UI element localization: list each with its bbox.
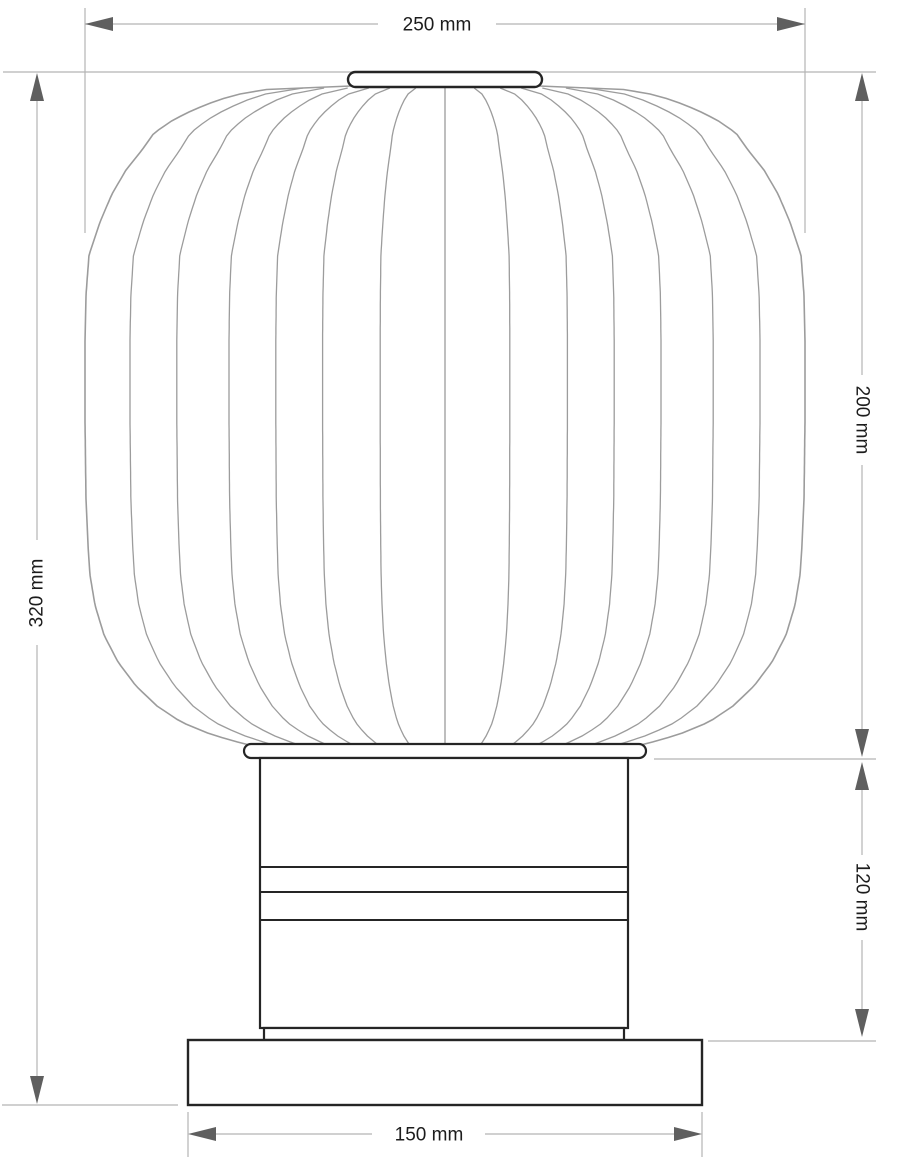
dimension-arrowhead: [777, 17, 805, 31]
dimension-arrowhead: [30, 73, 44, 101]
dimension-arrowhead: [855, 1009, 869, 1037]
dimension-arrowhead: [855, 729, 869, 757]
dimension-arrowhead: [188, 1127, 216, 1141]
dimension-arrowhead: [30, 1076, 44, 1104]
lamp-technical-drawing: 250 mm 320 mm 200 mm 120 mm 150 mm: [0, 0, 897, 1159]
dimension-arrowhead: [674, 1127, 702, 1141]
foot-ring: [264, 1028, 624, 1040]
top-cap: [348, 72, 542, 87]
technical-drawing-page: 250 mm 320 mm 200 mm 120 mm 150 mm: [0, 0, 897, 1159]
base-plate: [188, 1040, 702, 1105]
shade-collar: [244, 744, 646, 758]
dimension-label-base-width: 150 mm: [395, 1125, 464, 1146]
dimension-label-overall-width: 250 mm: [403, 15, 472, 36]
dimension-label-overall-height: 320 mm: [27, 559, 48, 628]
dimension-arrowhead: [855, 73, 869, 101]
dimension-label-pedestal-height: 120 mm: [852, 863, 873, 932]
dimension-label-shade-height: 200 mm: [852, 386, 873, 455]
dimension-arrowhead: [85, 17, 113, 31]
dimension-arrowhead: [855, 762, 869, 790]
